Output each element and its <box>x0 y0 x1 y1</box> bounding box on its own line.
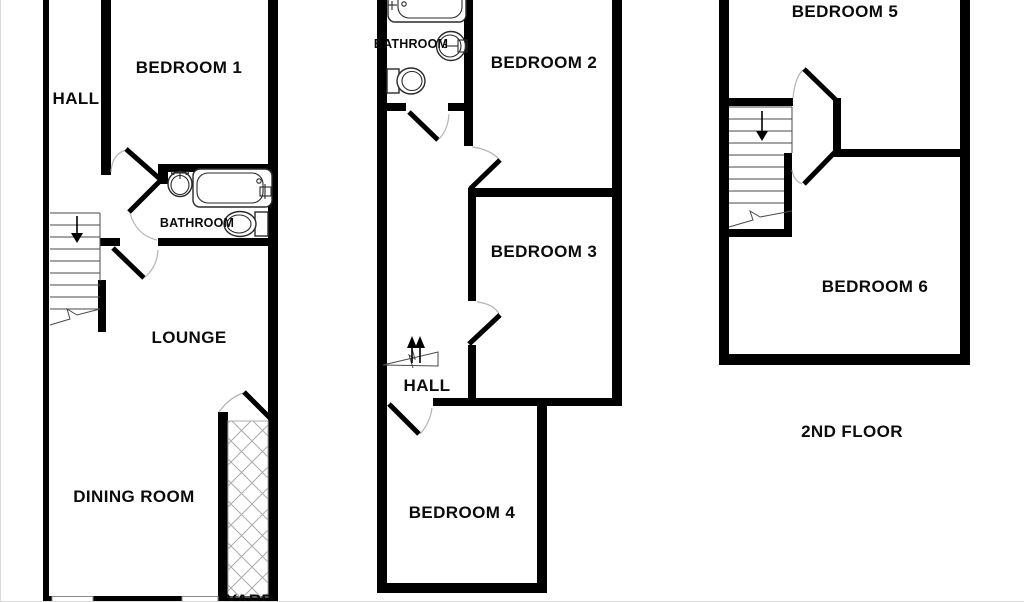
room-label-bedroom6: BEDROOM 6 <box>822 277 929 296</box>
door-bedroom3 <box>469 302 500 344</box>
floor-plan-page: HALL BEDROOM 1 BATHROOM LOUNGE DINING RO… <box>0 0 1024 602</box>
staircase-up-icon <box>383 336 438 368</box>
floor-plan-drawing: HALL BEDROOM 1 BATHROOM LOUNGE DINING RO… <box>0 0 1024 602</box>
door-bedroom2 <box>470 147 500 189</box>
room-label-hall: HALL <box>404 376 451 395</box>
room-label-bedroom1: BEDROOM 1 <box>136 58 243 77</box>
bathtub-icon <box>388 0 466 22</box>
second-floor-plan: BEDROOM 5 BEDROOM 6 2ND FLOOR <box>719 0 970 441</box>
room-label-yard: YARD <box>226 591 274 602</box>
room-label-hall: HALL <box>53 89 100 108</box>
bathtub-icon <box>193 169 272 207</box>
room-label-bedroom3: BEDROOM 3 <box>491 242 598 261</box>
ground-floor-plan: HALL BEDROOM 1 BATHROOM LOUNGE DINING RO… <box>43 0 278 602</box>
room-label-bathroom: BATHROOM <box>160 216 234 230</box>
yard-hatch <box>228 421 268 597</box>
door-bathroom <box>409 112 449 140</box>
door-bedroom1 <box>111 149 160 179</box>
room-label-bedroom2: BEDROOM 2 <box>491 53 598 72</box>
room-label-bedroom4: BEDROOM 4 <box>409 503 516 522</box>
door-bedroom4 <box>389 404 432 434</box>
first-floor-plan: BATHROOM BEDROOM 2 BEDROOM 3 HALL BEDROO… <box>374 0 622 593</box>
door-lounge <box>113 248 158 278</box>
floor-label-2nd-floor: 2ND FLOOR <box>801 422 903 441</box>
walls <box>719 0 970 365</box>
staircase-down-icon <box>50 213 100 325</box>
room-label-bathroom: BATHROOM <box>374 37 448 51</box>
sink-icon <box>168 170 192 197</box>
door-bathroom <box>129 181 160 240</box>
door-landing <box>792 69 836 184</box>
room-label-dining-room: DINING ROOM <box>73 487 195 506</box>
toilet-icon <box>387 68 425 94</box>
staircase-down-icon <box>729 107 792 227</box>
room-label-bedroom5: BEDROOM 5 <box>792 2 899 21</box>
room-label-lounge: LOUNGE <box>151 328 226 347</box>
